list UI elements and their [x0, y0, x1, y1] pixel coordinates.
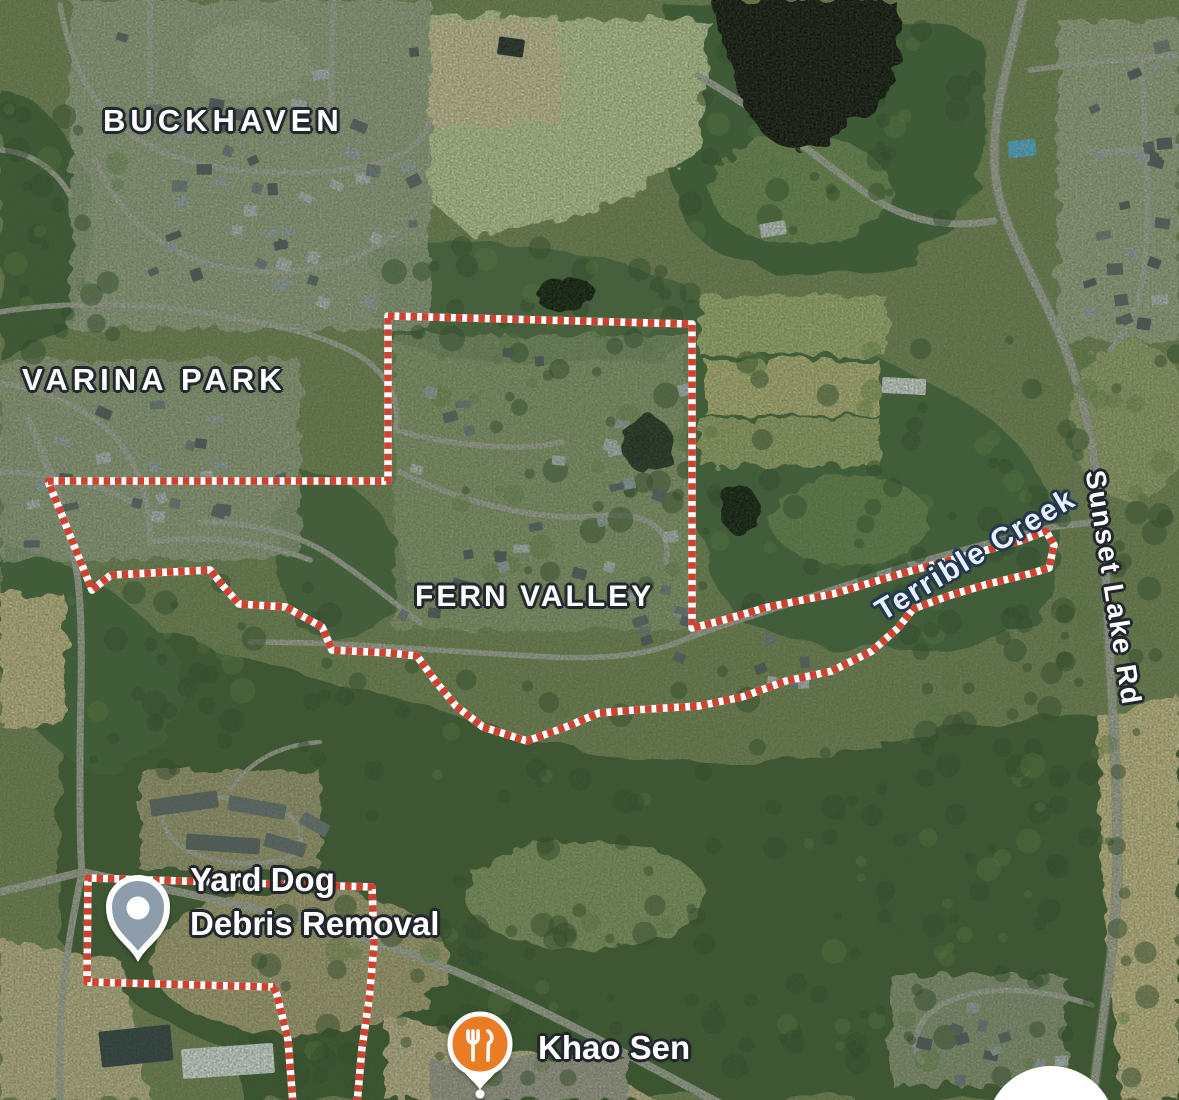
neighborhood-label-varina-park[interactable]: VARINA PARK — [22, 362, 287, 398]
poi-pin-yard-dog[interactable] — [98, 872, 178, 968]
neighborhood-label-fern-valley[interactable]: FERN VALLEY — [415, 580, 654, 614]
map-canvas[interactable]: BUCKHAVEN VARINA PARK FERN VALLEY Terrib… — [0, 0, 1179, 1100]
poi-label-line1: Yard Dog — [190, 858, 439, 902]
swimming-pool — [1007, 139, 1037, 159]
restaurant-icon — [450, 1014, 510, 1074]
poi-label-khao-sen[interactable]: Khao Sen — [538, 1026, 690, 1070]
pin-anchor-dot — [476, 1090, 485, 1099]
poi-pin-khao-sen[interactable] — [442, 1008, 518, 1100]
poi-label-yard-dog[interactable]: Yard Dog Debris Removal — [190, 858, 439, 946]
neighborhood-label-buckhaven[interactable]: BUCKHAVEN — [103, 103, 344, 139]
place-pin-icon — [109, 878, 167, 956]
poi-label-line2: Debris Removal — [190, 902, 439, 946]
